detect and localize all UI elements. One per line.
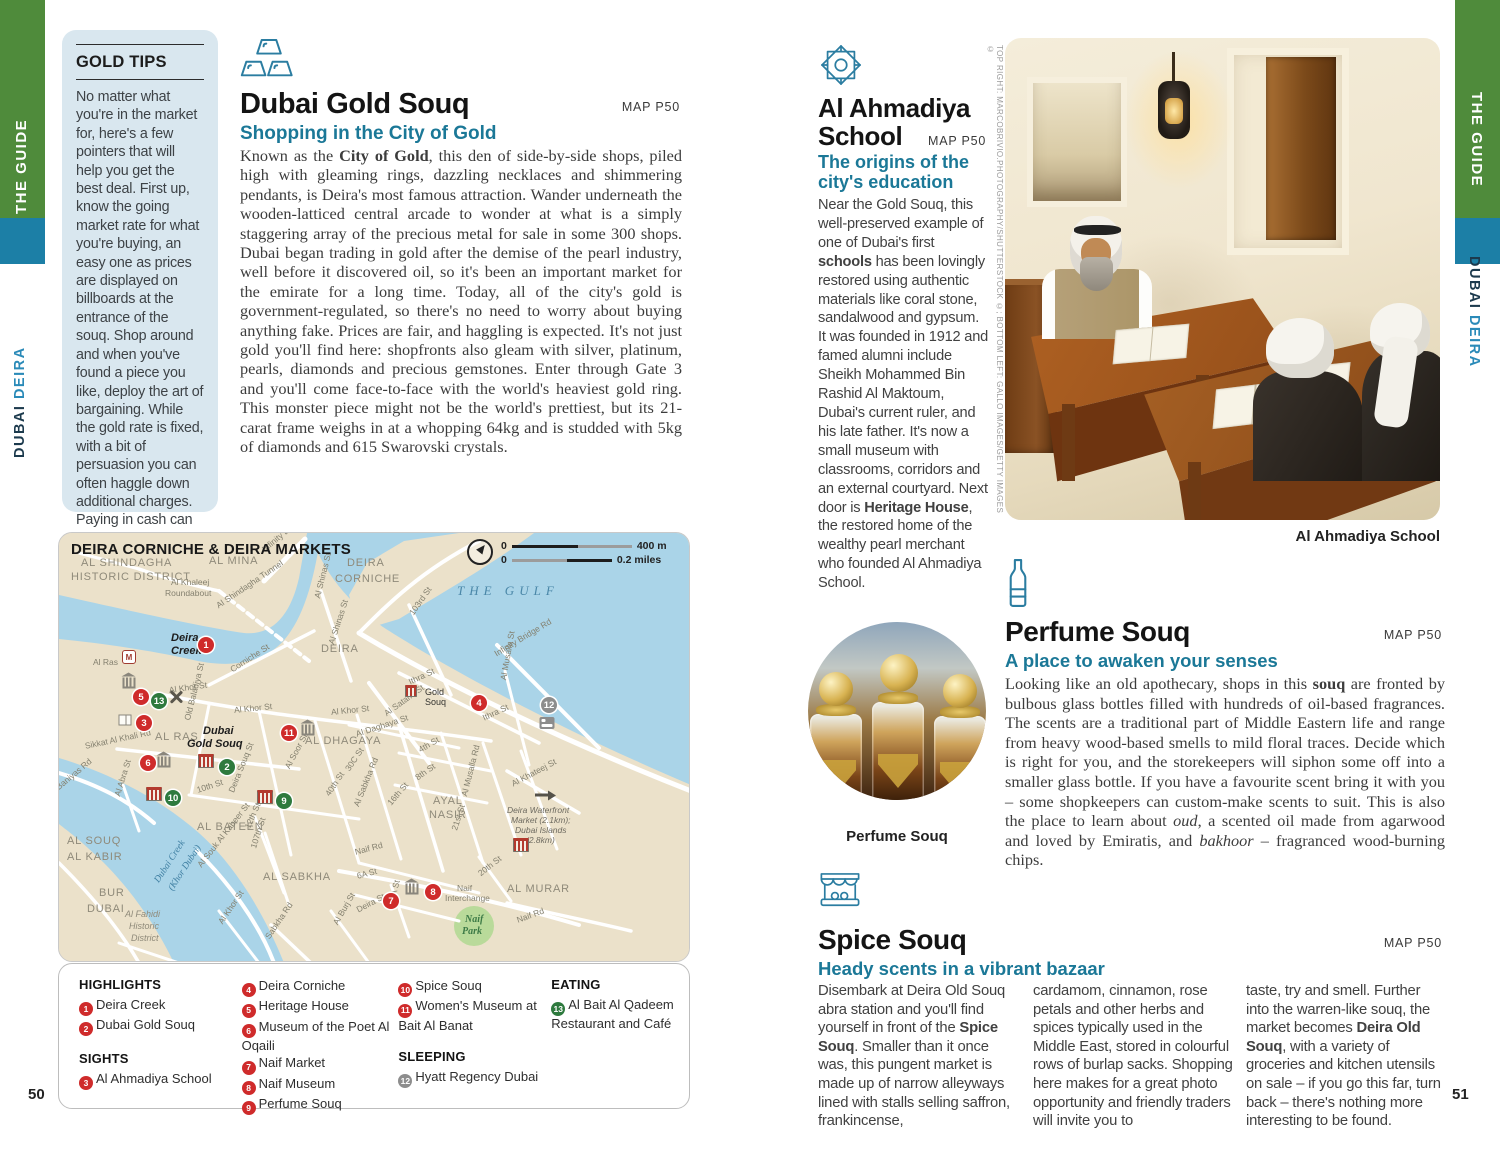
map-label: Interchange: [445, 893, 490, 903]
map-label: Al Fahidi: [125, 909, 160, 919]
map-label: DEIRA: [321, 643, 359, 655]
map-legend: HIGHLIGHTS1Deira Creek2Dubai Gold SouqSI…: [58, 963, 690, 1109]
bottle-neck: [878, 692, 918, 704]
map-label: (2.8km): [526, 835, 555, 845]
left-guide-tab: THE GUIDE: [13, 102, 30, 214]
legend-column: HIGHLIGHTS1Deira Creek2Dubai Gold SouqSI…: [79, 977, 242, 1098]
photo-credit: TOP RIGHT: MARCOBRIVIO.PHOTOGRAPHY/SHUTT…: [986, 45, 1004, 515]
map-marker-8: 8: [425, 884, 441, 900]
map-scale: 0 400 m 0 0.2 miles: [467, 539, 667, 567]
map-label: AL SABKHA: [263, 871, 331, 883]
scale-metres: 400 m: [637, 540, 667, 552]
compass-icon: [467, 539, 493, 565]
legend-column: EATING13Al Bait Al Qadeem Restaurant and…: [551, 977, 679, 1098]
divider: [76, 79, 204, 80]
guidebook-spread: THE GUIDE DUBAI DEIRA THE GUIDE DUBAI DE…: [0, 0, 1500, 1154]
perfume-title: Perfume Souq: [1005, 616, 1190, 648]
spice-title: Spice Souq: [818, 924, 966, 956]
map-label: AL MURAR: [507, 883, 570, 895]
chapter-area: DEIRA: [12, 346, 28, 399]
museum-icon: [302, 725, 315, 736]
museum-icon: [123, 678, 136, 689]
souqsm-icon: [405, 685, 417, 697]
scale-zero: 0: [501, 554, 507, 566]
map-marker-9: 9: [276, 793, 292, 809]
agal-band: [1074, 225, 1121, 235]
legend-item: 13Al Bait Al Qadeem Restaurant and Café: [551, 997, 679, 1033]
map-label: Al Shinas St: [312, 552, 333, 599]
arrow-icon: [535, 794, 549, 797]
map-marker-6: 6: [140, 755, 156, 771]
divider: [76, 44, 204, 45]
map-marker-11: 11: [281, 725, 297, 741]
museum-icon: [158, 757, 171, 768]
legend-marker-3: 3: [79, 1076, 93, 1090]
map-label: Naif Rd: [515, 906, 545, 925]
map-label: AL KABIR: [67, 851, 123, 863]
map-label: Al Souk Al Kabeer St: [195, 801, 251, 869]
map-label: Naif: [465, 914, 483, 925]
chapter-city: DUBAI: [1466, 256, 1482, 309]
map-label: Roundabout: [165, 588, 211, 598]
legend-item: 4Deira Corniche: [242, 978, 399, 997]
map-marker-12: 12: [541, 697, 557, 713]
map-label: 10th St: [195, 777, 224, 795]
legend-header: HIGHLIGHTS: [79, 977, 242, 994]
perfume-bottle: [934, 716, 986, 800]
map-label: Al Shinas St: [326, 598, 350, 645]
legend-column: 10Spice Souq11Women's Museum at Bait Al …: [398, 977, 551, 1098]
legend-marker-12: 12: [398, 1074, 412, 1088]
ahmadiya-photo: [1005, 38, 1440, 520]
legend-marker-5: 5: [242, 1004, 256, 1018]
map: DEIRA CORNICHE & DEIRA MARKETS 0 400 m 0…: [58, 532, 690, 962]
legend-item: 5Heritage House: [242, 998, 399, 1017]
souq-icon: [257, 790, 273, 804]
gold-tips-title: GOLD TIPS: [76, 53, 204, 72]
legend-item: 1Deira Creek: [79, 997, 242, 1016]
map-label: Al Ras: [93, 657, 118, 667]
wooden-shutter: [1266, 57, 1336, 240]
gold-tips-box: GOLD TIPS No matter what you're in the m…: [62, 30, 218, 512]
map-label: Deira: [171, 632, 199, 644]
gold-souq-body: Known as the City of Gold, this den of s…: [240, 146, 682, 457]
map-label: 6A St: [356, 866, 378, 881]
map-label: BUR: [99, 887, 125, 899]
legend-marker-10: 10: [398, 983, 412, 997]
perfume-bottle: [810, 714, 862, 800]
legend-item: 12Hyatt Regency Dubai: [398, 1069, 551, 1088]
right-chapter-tab: DUBAI DEIRA: [1466, 256, 1482, 461]
legend-marker-8: 8: [242, 1081, 256, 1095]
map-label: DUBAI: [87, 903, 125, 915]
chapter-area: DEIRA: [1466, 315, 1482, 368]
right-guide-tab: THE GUIDE: [1468, 92, 1485, 212]
map-label: Market (2.1km);: [511, 815, 571, 825]
map-label: Al Khor St: [233, 701, 272, 715]
lantern-glass: [1165, 98, 1183, 124]
teacher-beard: [1080, 257, 1113, 291]
perfume-photo-caption: Perfume Souq: [808, 828, 986, 845]
gold-souq-subtitle: Shopping in the City of Gold: [240, 123, 496, 145]
legend-item: 7Naif Market: [242, 1055, 399, 1074]
map-label: Gold: [425, 687, 444, 697]
map-label: Infinity Bridge Rd: [492, 616, 553, 658]
spice-column-3: taste, try and smell. Further into the w…: [1246, 982, 1446, 1131]
map-label: AL DHAGAYA: [305, 735, 381, 747]
photo-caption: Al Ahmadiya School: [1140, 528, 1440, 545]
map-label: THE GULF: [457, 583, 559, 599]
map-label: Deira Waterfront: [507, 805, 569, 815]
map-label: Park: [462, 926, 482, 937]
legend-marker-2: 2: [79, 1022, 93, 1036]
map-marker-2: 2: [219, 759, 235, 775]
map-label: Sabkha Rd: [263, 900, 295, 940]
gold-tips-body: No matter what you're in the market for,…: [76, 88, 204, 567]
legend-marker-13: 13: [551, 1002, 565, 1016]
map-label: Gold Souq: [187, 738, 243, 750]
map-label: CORNICHE: [335, 573, 400, 585]
spice-column-2: cardamom, cinnamon, rose petals and othe…: [1033, 982, 1235, 1131]
map-label: 103rd St: [407, 585, 434, 617]
desk-leg: [1188, 462, 1201, 520]
map-label: 30C St: [343, 746, 366, 773]
legend-item: 6Museum of the Poet Al Oqaili: [242, 1019, 399, 1055]
map-label: 8th St: [413, 761, 437, 782]
page-number-left: 50: [28, 1086, 45, 1103]
gold-souq-map-ref: MAP P50: [540, 100, 680, 114]
legend-column: 4Deira Corniche5Heritage House6Museum of…: [242, 977, 399, 1098]
map-label: Al Khor St: [216, 888, 246, 925]
perfume-photo: [808, 622, 986, 800]
gold-bars-icon: [240, 36, 298, 87]
left-chapter-tab: DUBAI DEIRA: [12, 258, 28, 458]
map-label: District: [131, 933, 159, 943]
legend-item: 2Dubai Gold Souq: [79, 1017, 242, 1036]
glass-stopper: [819, 672, 853, 706]
legend-marker-1: 1: [79, 1002, 93, 1016]
map-marker-3: 3: [136, 715, 152, 731]
perfume-bottle-icon: [1005, 558, 1031, 613]
legend-header: EATING: [551, 977, 679, 994]
map-label: Deira St: [355, 891, 387, 914]
map-marker-7: 7: [383, 893, 399, 909]
map-label: Al Daghaya St: [354, 712, 409, 738]
page-number-right: 51: [1452, 1086, 1469, 1103]
souq-icon: [198, 754, 214, 768]
map-label: AL SOUQ: [67, 835, 121, 847]
legend-header: SIGHTS: [79, 1051, 242, 1068]
map-label: Dubai Islands: [515, 825, 567, 835]
map-labels: AL SHINDAGHAHISTORIC DISTRICTAL MINADEIR…: [59, 533, 689, 961]
legend-marker-11: 11: [398, 1004, 412, 1018]
map-marker-1: 1: [198, 637, 214, 653]
legend-marker-7: 7: [242, 1061, 256, 1075]
legend-item: 9Perfume Souq: [242, 1096, 399, 1115]
map-label: 16th St: [385, 780, 410, 807]
perfume-body: Looking like an old apothecary, shops in…: [1005, 674, 1445, 870]
legend-item: 8Naif Museum: [242, 1076, 399, 1095]
legend-marker-9: 9: [242, 1101, 256, 1115]
map-label: Naif: [457, 883, 472, 893]
map-label: 20th St: [476, 853, 503, 877]
book-icon: [119, 715, 132, 726]
map-label: Naif Rd: [354, 840, 384, 857]
map-label: Al Musalla Rd: [459, 744, 481, 797]
glass-stopper: [880, 654, 918, 692]
geometric-ornament-icon: [818, 42, 864, 93]
map-label: Al Burj St: [331, 891, 357, 927]
map-title: DEIRA CORNICHE & DEIRA MARKETS: [71, 541, 351, 558]
map-label: Al Khateej St: [510, 757, 558, 789]
student-figure: [1253, 371, 1363, 481]
ahmadiya-map-ref: MAP P50: [928, 134, 986, 148]
student-turban: [1266, 318, 1334, 378]
gold-souq-title: Dubai Gold Souq: [240, 88, 469, 121]
scale-zero: 0: [501, 540, 507, 552]
map-label: 40th St: [323, 770, 346, 798]
scale-miles: 0.2 miles: [617, 554, 661, 566]
legend-marker-4: 4: [242, 983, 256, 997]
spice-column-1: Disembark at Deira Old Souq abra station…: [818, 982, 1020, 1131]
map-marker-5: 5: [133, 689, 149, 705]
legend-item: 3Al Ahmadiya School: [79, 1071, 242, 1090]
map-marker-4: 4: [471, 695, 487, 711]
museum-icon: [406, 884, 419, 895]
map-label: Creek: [171, 645, 202, 657]
chapter-city: DUBAI: [12, 405, 28, 458]
glass-stopper: [943, 674, 977, 708]
map-label: 4th St: [417, 735, 441, 755]
spice-subtitle: Heady scents in a vibrant bazaar: [818, 958, 1105, 980]
perfume-bottle: [872, 702, 924, 800]
legend-item: 10Spice Souq: [398, 978, 551, 997]
map-marker-13: 13: [151, 693, 167, 709]
map-label: Corniche St: [228, 642, 271, 675]
souq-icon: [146, 787, 162, 801]
map-label: Historic: [129, 921, 159, 931]
ahmadiya-body: Near the Gold Souq, this well-preserved …: [818, 196, 990, 593]
map-label: Souq: [425, 697, 446, 707]
bed-icon: [540, 717, 555, 729]
map-label: Al Khor St: [330, 703, 369, 717]
legend-header: SLEEPING: [398, 1049, 551, 1066]
spice-map-ref: MAP P50: [1302, 936, 1442, 950]
fork-icon: [169, 690, 183, 704]
map-label: Al Abra St: [112, 758, 133, 797]
map-label: AL SHINDAGHA: [81, 557, 172, 569]
market-stall-icon: [818, 870, 862, 915]
map-label: Al Khaleej: [171, 577, 209, 587]
legend-marker-6: 6: [242, 1024, 256, 1038]
metro-icon: M: [122, 650, 136, 664]
map-marker-10: 10: [165, 790, 181, 806]
map-label: Baniyas Rd: [58, 756, 94, 792]
perfume-subtitle: A place to awaken your senses: [1005, 650, 1278, 672]
legend-item: 11Women's Museum at Bait Al Banat: [398, 998, 551, 1034]
map-label: Dubai: [203, 725, 234, 737]
souq-icon: [513, 838, 529, 852]
perfume-map-ref: MAP P50: [1302, 628, 1442, 642]
map-label: DEIRA: [347, 557, 385, 569]
window-niche: [1027, 77, 1127, 207]
ahmadiya-subtitle: The origins of the city's education: [818, 152, 998, 192]
